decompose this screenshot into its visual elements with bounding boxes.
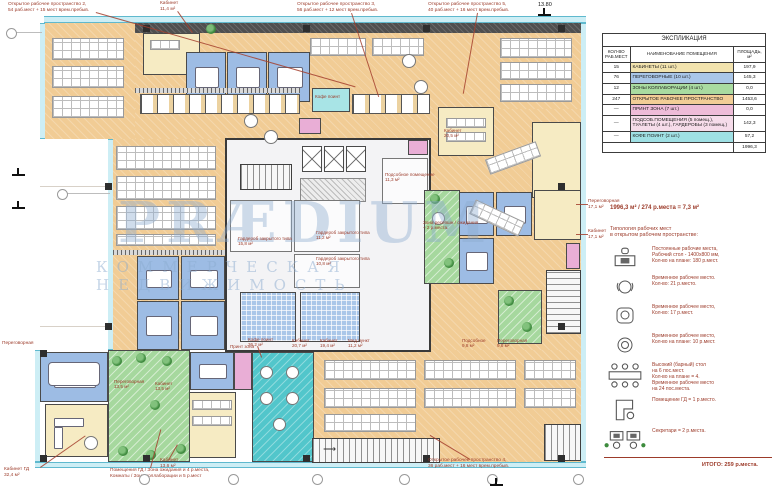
legend-row: —ПОДСОБ.ПОМЕЩЕНИЯ (5 помещ.), ТУАЛЕТЫ (4… (603, 115, 766, 131)
axis-bubble (573, 474, 584, 485)
elevation-glyph-icon (490, 478, 503, 486)
legend-cell: ОТКРЫТОЕ РАБОЧЕЕ ПРОСТРАНСТВО (630, 94, 733, 105)
axis-bubble (139, 474, 150, 485)
plan-annotation: Кабинет ГД32,4 м² (4, 467, 29, 478)
room-label: Кофе поинт (315, 94, 340, 99)
room-label: Принт зона (230, 344, 254, 349)
legend-cell: — (603, 131, 631, 142)
room-label: Гардероб закрытого типа15,8 м² (238, 236, 292, 246)
legend-cell (603, 142, 734, 153)
legend-title: ЭКСПЛИКАЦИЯ (603, 34, 766, 47)
plan-annotation: Помещения ГД / Зона ожидания и 4 р.места… (110, 468, 209, 479)
legend-cell: 142,3 (734, 115, 766, 131)
plan-annotation: Кабинет17,1 м² (588, 229, 606, 240)
legend-row: 76ПЕРЕГОВОРНЫЕ (10 шт.)145,3 (603, 73, 766, 84)
elevation-mark (490, 478, 503, 486)
plan-annotation: Открытое рабочее пространство 5,40 раб.м… (428, 2, 509, 13)
legend-cell: 12 (603, 83, 631, 94)
legend-cell: 76 (603, 73, 631, 84)
legend-cell: 57,2 (734, 131, 766, 142)
legend-header: НАИМЕНОВАНИЕ ПОМЕЩЕНИЯ (630, 46, 733, 62)
labels-layer: Открытое рабочее пространство 2,54 раб.м… (0, 0, 600, 493)
floor-plan-sheet: ⟶ (0, 0, 774, 493)
typology-intro: Типология рабочих мест в открытом рабоче… (610, 226, 698, 239)
axis-bubble (6, 28, 17, 39)
legend-row: 247ОТКРЫТОЕ РАБОЧЕЕ ПРОСТРАНСТВО1453,6 (603, 94, 766, 105)
axis-bubble (399, 474, 410, 485)
typology-item: Высокий (барный) столна 6 пос.мест.Кол-в… (604, 362, 772, 392)
plan-annotation: Открытое рабочее пространство 2,54 раб.м… (8, 2, 89, 13)
legend-cell: ПЕРЕГОВОРНЫЕ (10 шт.) (630, 73, 733, 84)
legend-cell: 15 (603, 62, 631, 73)
room-label: Переговорная9,8 м² (497, 338, 527, 348)
room-label: Кабинет13,5 м² (155, 381, 172, 391)
legend-cell: — (603, 115, 631, 131)
elevation-glyph-icon (538, 8, 551, 16)
typology-item-text: Помещение ГД = 1 р.место. (652, 397, 716, 403)
legend-cell: КОФЕ ПОИНТ (2 шт.) (630, 131, 733, 142)
elevation-mark (12, 201, 25, 209)
area-summary: 1996,3 м² / 274 р.места = 7,3 м² (610, 205, 699, 211)
typology-item-text: Временное рабочее место,Кол-во: 17 р.мес… (652, 304, 715, 316)
legend-total-row: 1996,3 (603, 142, 766, 153)
room-label: Кабинет20,5 м² (444, 128, 461, 138)
axis-bubble (57, 189, 68, 200)
legend-cell: — (603, 105, 631, 116)
legend-cell: 197,9 (734, 62, 766, 73)
plan-annotation: Переговорная (2, 341, 34, 347)
room-label: Гардероб закрытого типа11,2 м² (316, 230, 370, 240)
typology-total: ИТОГО: 259 р.места. (604, 457, 772, 468)
legend-row: 12ЗОНЫ КОЛЛАБОРАЦИИ (4 шт.)0,0 (603, 83, 766, 94)
room-label: Переговорная13,5 м² (114, 379, 144, 389)
legend-table: ЭКСПЛИКАЦИЯ КОЛ-ВО РАБ.МЕСТНАИМЕНОВАНИЕ … (602, 33, 766, 153)
desk-icon (604, 246, 646, 270)
legend-row: —КОФЕ ПОИНТ (2 шт.)57,2 (603, 131, 766, 142)
floor-plan-drawing: ⟶ (0, 0, 600, 493)
office-chair-icon (604, 275, 646, 299)
elevation-glyph-icon (12, 168, 25, 176)
elevation-mark: 13.80 (538, 2, 552, 16)
typology-item-text: Временное рабочее место.Кол-во: 21 р.мес… (652, 275, 715, 287)
room-label: Подсобное9,8 м² (462, 338, 486, 348)
typology-item: Временное рабочее место.Кол-во: 21 р.мес… (604, 275, 772, 299)
typology-item: Постоянные рабочие места,Рабочий стол - … (604, 246, 772, 270)
room-label: Зона ресепшн / ожидания– 2 р.места. (423, 220, 478, 230)
typology-item: Помещение ГД = 1 р.место. (604, 397, 772, 423)
elevation-glyph-icon (12, 201, 25, 209)
legend-cell: 1453,6 (734, 94, 766, 105)
legend-cell: 145,3 (734, 73, 766, 84)
axis-bubble (312, 474, 323, 485)
legend-header: ПЛОЩАДЬ, м² (734, 46, 766, 62)
legend-row: —ПРИНТ ЗОНА (7 шт.)0,0 (603, 105, 766, 116)
elevation-mark (12, 168, 25, 176)
director-desk-icon (604, 397, 646, 423)
room-label: Подсобное помещение11,3 м² (385, 172, 435, 182)
legend-row: 15КАБИНЕТЫ (11 шт.)197,9 (603, 62, 766, 73)
legend-cell: 0,0 (734, 83, 766, 94)
typology-intro-line: в открытом рабочем пространстве: (610, 232, 698, 238)
plan-annotation: Кабинет13,6 м² (160, 458, 178, 469)
room-label: Мед.пункт11,2 м² (348, 338, 370, 348)
typology-item-text: Постоянные рабочие места,Рабочий стол - … (652, 246, 719, 264)
legend-cell: КАБИНЕТЫ (11 шт.) (630, 62, 733, 73)
legend-header: КОЛ-ВО РАБ.МЕСТ (603, 46, 631, 62)
typology-item: Временное рабочее место,Кол-во на плане:… (604, 333, 772, 357)
legend-cell: ЗОНЫ КОЛЛАБОРАЦИИ (4 шт.) (630, 83, 733, 94)
secretary-desks-icon (604, 428, 646, 452)
bar-table-icon (604, 362, 646, 390)
typology-item: Временное рабочее место,Кол-во: 17 р.мес… (604, 304, 772, 328)
legend-cell: 0,0 (734, 105, 766, 116)
typology-list: Постоянные рабочие места,Рабочий стол - … (604, 246, 772, 468)
plan-annotation: Открытое рабочее пространство 4,36 раб.м… (428, 458, 509, 469)
plan-annotation: Открытое рабочее пространство 3,56 раб.м… (297, 2, 378, 13)
legend-total-area: 1996,3 (734, 142, 766, 153)
typology-item: Секретари = 2 р.места. (604, 428, 772, 452)
axis-bubble (228, 474, 239, 485)
room-label: Гардероб закрытого типа10,8 м² (316, 256, 370, 266)
typology-item-text: Временное рабочее место,Кол-во на плане:… (652, 333, 716, 345)
typology-item-text: Секретари = 2 р.места. (652, 428, 706, 434)
pouf-icon (604, 333, 646, 357)
lounge-chair-icon (604, 304, 646, 328)
room-label: Кабинет20,7 м² (292, 338, 309, 348)
plan-annotation: Кабинет11,4 м² (160, 1, 178, 12)
room-label: Кабинет19,4 м² (320, 338, 337, 348)
typology-item-text: Высокий (барный) столна 6 пос.мест.Кол-в… (652, 362, 714, 392)
legend-cell: ПОДСОБ.ПОМЕЩЕНИЯ (5 помещ.), ТУАЛЕТЫ (4 … (630, 115, 733, 131)
legend-cell: 247 (603, 94, 631, 105)
legend-cell: ПРИНТ ЗОНА (7 шт.) (630, 105, 733, 116)
